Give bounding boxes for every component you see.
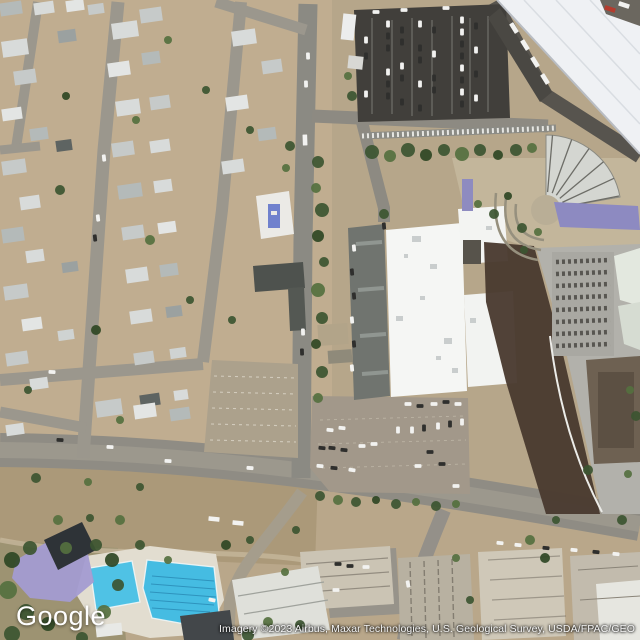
car xyxy=(371,442,378,446)
tree xyxy=(527,143,537,153)
car xyxy=(474,47,478,54)
car xyxy=(364,53,368,60)
tree xyxy=(455,147,469,161)
tree xyxy=(132,116,140,124)
car xyxy=(460,77,464,84)
tree xyxy=(540,553,550,563)
car xyxy=(422,425,426,432)
car xyxy=(460,89,464,96)
road-ns-main xyxy=(301,4,308,478)
roof-unit xyxy=(430,264,437,269)
small-building-1 xyxy=(317,323,348,346)
roof-unit xyxy=(486,226,492,230)
tree xyxy=(372,496,380,504)
car xyxy=(418,21,422,28)
google-logo[interactable]: Google xyxy=(16,601,106,632)
street-cross-left xyxy=(0,146,40,150)
car xyxy=(410,427,414,434)
tree xyxy=(489,209,499,219)
shade-canopy-west xyxy=(462,179,473,211)
tree xyxy=(315,203,329,217)
tree xyxy=(311,183,321,193)
car xyxy=(592,550,599,555)
car xyxy=(400,39,404,46)
car xyxy=(382,222,386,229)
car xyxy=(364,37,368,44)
roof-unit xyxy=(412,236,421,242)
civic-west-wing-detail xyxy=(358,288,384,290)
car xyxy=(306,52,310,59)
car xyxy=(418,45,422,52)
house-roof xyxy=(165,305,182,318)
blue-sign xyxy=(268,204,280,228)
tree xyxy=(112,579,124,591)
roof-unit xyxy=(404,254,408,258)
car xyxy=(432,51,436,58)
roof-unit xyxy=(396,316,403,321)
civic-core-dark xyxy=(463,240,481,264)
car xyxy=(304,80,308,87)
tree xyxy=(624,470,632,478)
car xyxy=(333,588,340,592)
tree xyxy=(31,473,41,483)
tree xyxy=(316,312,328,324)
car xyxy=(326,428,333,432)
car xyxy=(350,268,354,275)
brown-roof-inner xyxy=(598,372,634,448)
tree xyxy=(534,228,542,236)
car xyxy=(328,446,335,450)
car xyxy=(427,450,434,454)
tree xyxy=(517,223,527,233)
car xyxy=(460,41,464,48)
car xyxy=(352,244,356,251)
roof-unit xyxy=(436,356,441,360)
tree xyxy=(313,393,323,403)
tree xyxy=(84,478,92,486)
car xyxy=(352,340,356,347)
car xyxy=(359,444,366,448)
car xyxy=(455,402,462,406)
car xyxy=(612,552,619,557)
house-roof xyxy=(173,389,188,401)
tree xyxy=(60,542,72,554)
tree xyxy=(344,72,352,80)
tree xyxy=(452,500,460,508)
tree xyxy=(384,150,396,162)
car xyxy=(496,541,503,546)
car xyxy=(352,292,356,299)
tree xyxy=(202,86,210,94)
tree xyxy=(281,568,289,576)
tree xyxy=(452,554,460,562)
car xyxy=(386,69,390,76)
blue-sign-gap xyxy=(271,211,277,215)
roof-unit xyxy=(420,296,425,300)
truck xyxy=(303,134,308,145)
tree xyxy=(466,596,474,604)
satellite-imagery xyxy=(0,0,640,640)
car xyxy=(460,419,464,426)
tree xyxy=(504,192,512,200)
tree xyxy=(24,386,32,394)
house-roof xyxy=(29,127,48,141)
car xyxy=(340,448,347,452)
roof-unit xyxy=(444,338,452,344)
car xyxy=(386,21,390,28)
car xyxy=(318,446,325,450)
tree xyxy=(312,156,324,168)
tree xyxy=(319,257,329,267)
car xyxy=(300,348,304,355)
tree xyxy=(55,185,65,195)
tree xyxy=(412,498,420,506)
tree xyxy=(365,145,379,159)
parking-lot-mid xyxy=(310,396,470,494)
car xyxy=(460,65,464,72)
house-roof xyxy=(55,139,72,152)
car xyxy=(338,426,345,430)
tree xyxy=(164,36,172,44)
car xyxy=(474,95,478,102)
car xyxy=(448,421,452,428)
car xyxy=(96,214,101,221)
tree xyxy=(221,540,231,550)
car xyxy=(301,328,305,335)
car xyxy=(417,404,424,408)
car xyxy=(386,45,390,52)
car xyxy=(246,466,253,470)
house-roof xyxy=(257,127,276,141)
car xyxy=(514,543,521,548)
car xyxy=(453,484,460,488)
car xyxy=(396,427,400,434)
car xyxy=(436,423,440,430)
tree xyxy=(282,164,290,172)
car xyxy=(363,565,370,569)
tree xyxy=(493,150,503,160)
map-viewport[interactable]: Google Imagery ©2023 Airbus, Maxar Techn… xyxy=(0,0,640,640)
small-building-2 xyxy=(328,349,353,364)
tree xyxy=(312,230,324,242)
car xyxy=(400,63,404,70)
tree xyxy=(311,339,321,349)
tree xyxy=(135,540,145,550)
tree xyxy=(246,126,254,134)
tree xyxy=(474,144,486,156)
tree xyxy=(525,535,535,545)
tree xyxy=(285,141,295,151)
tree xyxy=(315,491,325,501)
tree xyxy=(311,283,325,297)
car xyxy=(443,400,450,404)
car xyxy=(56,438,63,442)
shade-canopy-plaza xyxy=(554,202,640,230)
car xyxy=(102,154,107,161)
tree xyxy=(145,235,155,245)
map-attribution[interactable]: Imagery ©2023 Airbus, Maxar Technologies… xyxy=(219,623,635,635)
tree xyxy=(510,144,522,156)
car xyxy=(400,27,404,34)
car xyxy=(405,402,412,406)
tree xyxy=(23,541,37,555)
vent-block xyxy=(552,252,614,356)
tree xyxy=(617,515,627,525)
car xyxy=(460,53,464,60)
house-roof xyxy=(159,263,178,277)
tree xyxy=(379,209,389,219)
car xyxy=(432,75,436,82)
car xyxy=(400,99,404,106)
car xyxy=(415,464,422,468)
tree xyxy=(228,316,236,324)
car xyxy=(373,10,380,14)
roof-unit xyxy=(470,318,476,323)
car xyxy=(386,93,390,100)
car xyxy=(386,81,390,88)
car xyxy=(316,464,323,468)
car xyxy=(48,370,55,374)
tree xyxy=(186,296,194,304)
car xyxy=(364,91,368,98)
tree xyxy=(420,149,432,161)
car xyxy=(350,316,354,323)
house-roof xyxy=(19,195,41,211)
car xyxy=(347,564,354,568)
tree xyxy=(105,553,119,567)
car xyxy=(474,71,478,78)
car xyxy=(418,105,422,112)
tree xyxy=(431,501,441,511)
civic-west-wing-detail xyxy=(360,334,386,336)
car xyxy=(350,364,354,371)
house-roof xyxy=(149,95,171,111)
tree xyxy=(86,514,94,522)
tree xyxy=(626,386,634,394)
car xyxy=(443,6,450,10)
rv-parked xyxy=(341,13,357,40)
car xyxy=(431,402,438,406)
house-roof xyxy=(141,51,160,65)
house-roof xyxy=(261,59,283,75)
tree xyxy=(583,465,593,475)
car xyxy=(432,27,436,34)
house-roof xyxy=(153,179,172,193)
tree xyxy=(391,499,401,509)
car xyxy=(570,548,577,553)
tree xyxy=(90,539,102,551)
tree xyxy=(438,144,450,156)
roof-unit xyxy=(452,368,458,373)
car xyxy=(460,17,464,24)
car xyxy=(106,445,113,449)
tree xyxy=(401,143,415,157)
tree xyxy=(316,366,328,378)
tree xyxy=(552,516,560,524)
car xyxy=(386,33,390,40)
tree xyxy=(246,536,254,544)
shed xyxy=(347,55,363,69)
tree xyxy=(91,325,101,335)
car xyxy=(418,81,422,88)
tree xyxy=(116,416,124,424)
car xyxy=(400,75,404,82)
parking-lot-striped xyxy=(204,360,298,458)
car xyxy=(432,87,436,94)
civic-west-wing-detail xyxy=(356,242,382,244)
car xyxy=(460,101,464,108)
civic-west-wing-detail xyxy=(362,372,388,374)
car xyxy=(542,546,549,551)
house-roof xyxy=(57,29,76,43)
car xyxy=(418,57,422,64)
car xyxy=(460,29,464,36)
tree xyxy=(474,200,482,208)
car xyxy=(439,462,446,466)
house-roof xyxy=(25,249,44,263)
tree xyxy=(333,495,343,505)
l-building-side xyxy=(288,287,306,331)
car xyxy=(93,234,98,241)
car xyxy=(474,23,478,30)
car xyxy=(164,459,171,463)
car xyxy=(330,466,337,470)
car xyxy=(401,8,408,12)
tree xyxy=(164,556,172,564)
tree xyxy=(520,246,528,254)
tree xyxy=(292,526,300,534)
tree xyxy=(351,497,361,507)
tree xyxy=(4,552,20,568)
car xyxy=(335,562,342,566)
tree xyxy=(53,515,63,525)
tree xyxy=(62,92,70,100)
tree xyxy=(136,483,144,491)
tree xyxy=(115,515,125,525)
tree xyxy=(347,91,357,101)
